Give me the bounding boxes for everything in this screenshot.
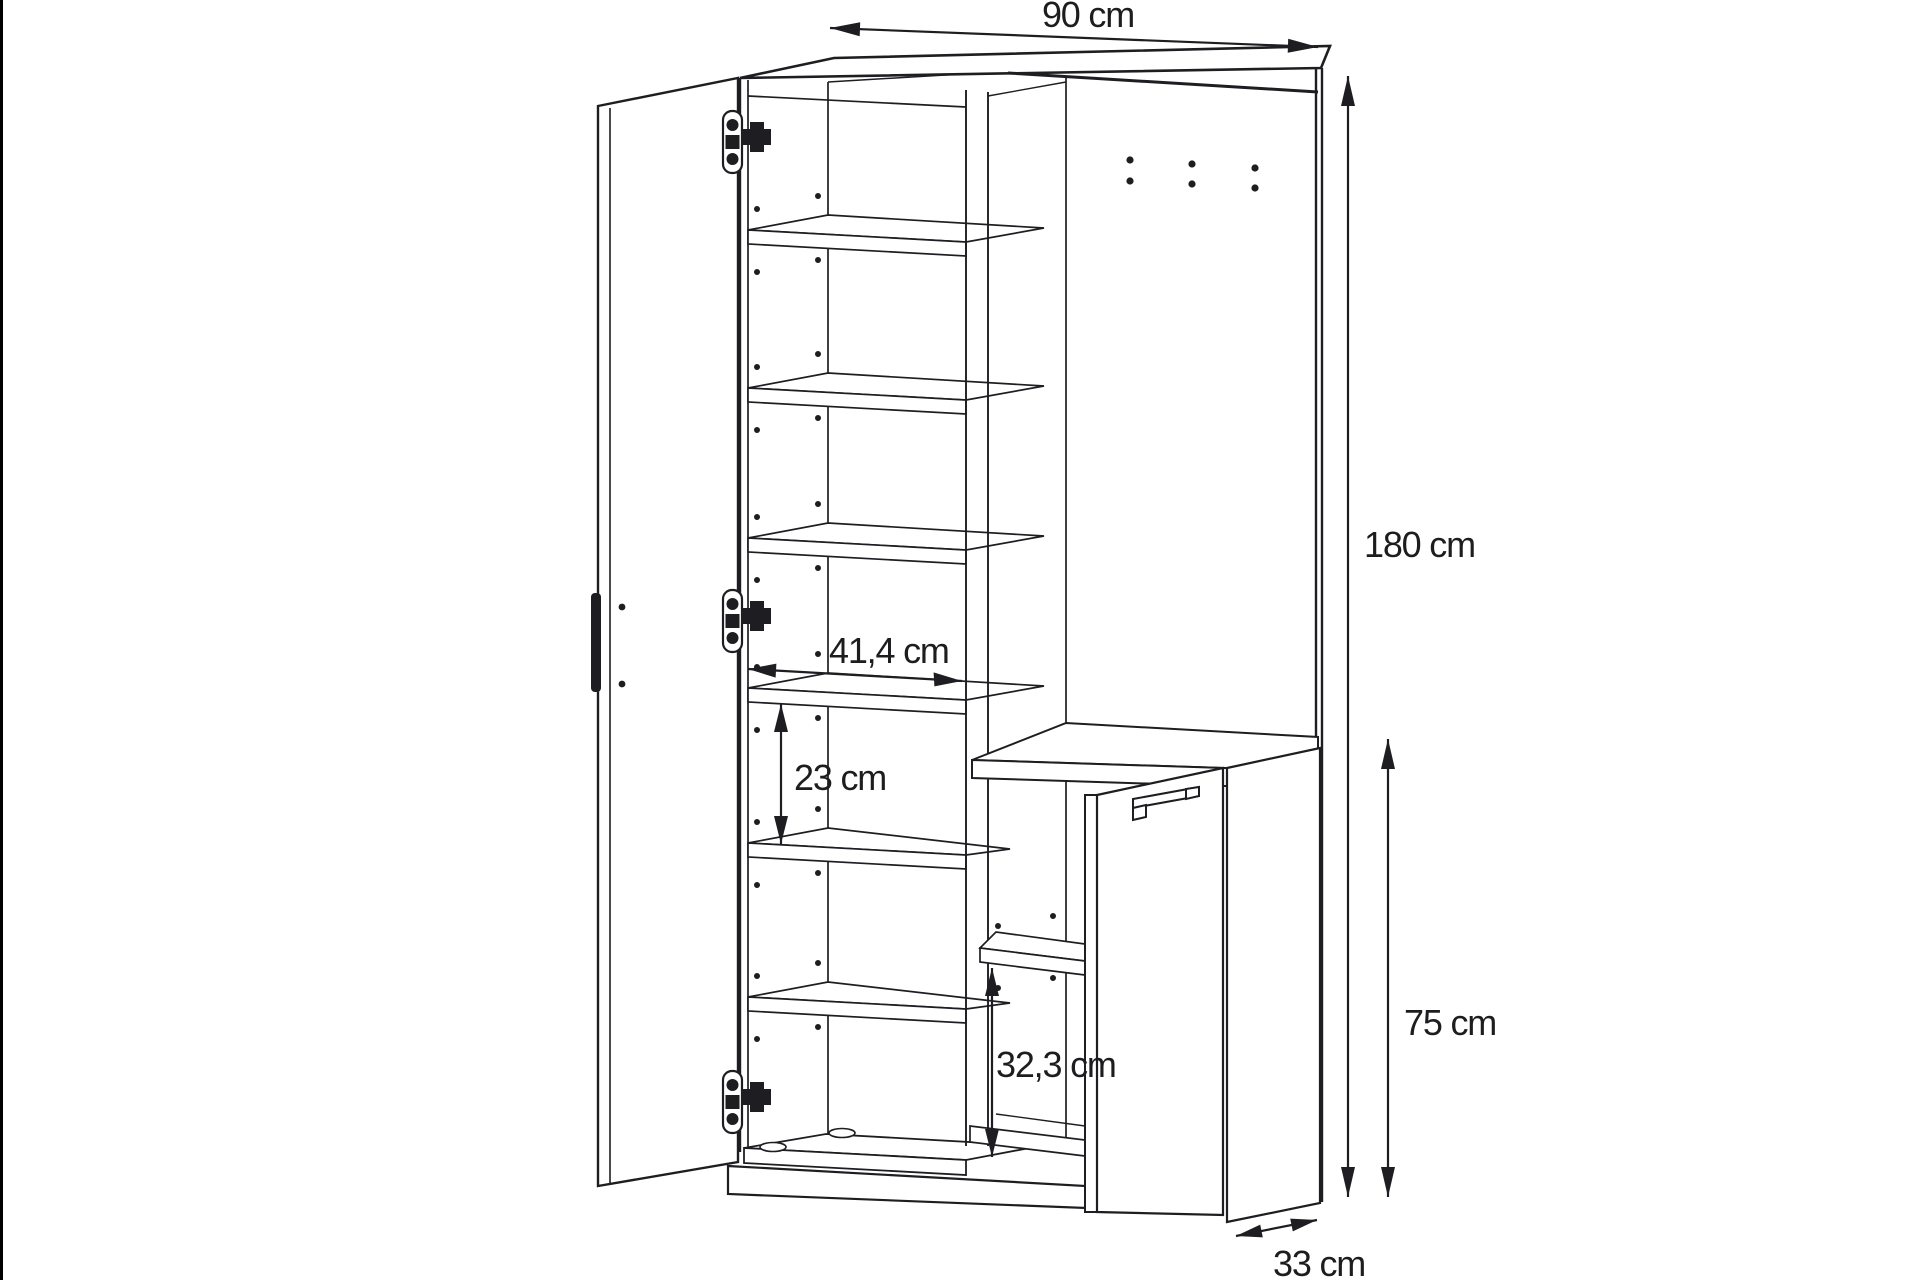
furniture-dimension-diagram: 90 cm 180 cm 75 cm 41,4 cm 23 cm (0, 0, 1920, 1280)
shelf-4 (748, 673, 1044, 714)
door-edge-handle (591, 593, 601, 692)
hinge-bottom (723, 1071, 771, 1133)
shelf-1 (748, 215, 1044, 256)
lower-door-ajar (1085, 748, 1320, 1222)
dimension-label-lower-height: 75 cm (1404, 1002, 1496, 1043)
diagram-canvas: 90 cm 180 cm 75 cm 41,4 cm 23 cm (0, 0, 1920, 1280)
shelf-2 (748, 373, 1044, 414)
foot-slot (760, 1143, 786, 1152)
dimension-depth: 33 cm (1236, 1219, 1365, 1280)
shelf-6 (748, 982, 1010, 1023)
dimension-label-lower-compartment: 32,3 cm (996, 1044, 1116, 1085)
dimension-label-shelf-gap: 23 cm (794, 757, 886, 798)
dimension-lower-height: 75 cm (1381, 739, 1496, 1197)
shelf-5 (748, 828, 1010, 869)
image-left-border (0, 0, 3, 1280)
dimension-label-height-total: 180 cm (1364, 524, 1475, 565)
left-door-open (591, 78, 738, 1186)
hinge-top (723, 111, 771, 173)
dimension-width-total: 90 cm (830, 0, 1318, 53)
hinge-middle (723, 590, 771, 652)
dimension-label-inner-width: 41,4 cm (829, 630, 949, 671)
hook-holes (1126, 156, 1258, 191)
dimension-label-width-total: 90 cm (1042, 0, 1134, 35)
dimension-shelf-gap: 23 cm (774, 704, 886, 844)
center-divider (966, 82, 1066, 1146)
shelf-column (744, 193, 1044, 1175)
shelf-3 (748, 523, 1044, 564)
dimension-label-depth: 33 cm (1273, 1243, 1365, 1280)
foot-slot (829, 1129, 855, 1138)
